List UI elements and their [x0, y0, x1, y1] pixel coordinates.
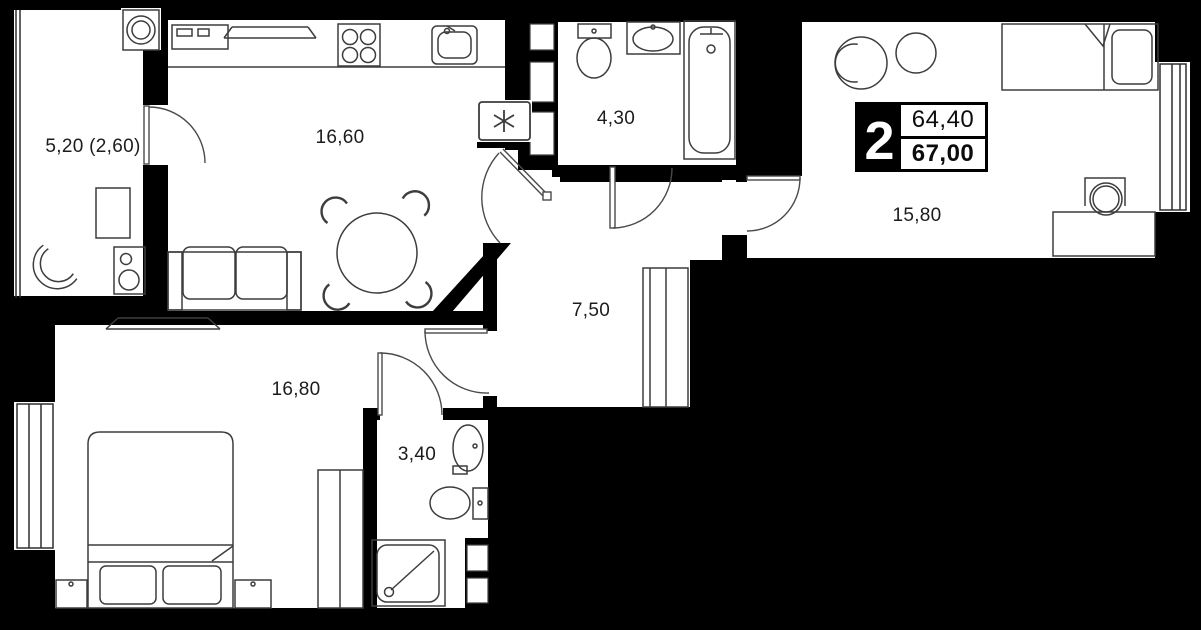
room-label-balcony: 5,20 (2,60) — [45, 136, 140, 158]
room-label-kitchen-living: 16,60 — [315, 127, 364, 149]
room-label-bedroom-right: 15,80 — [892, 205, 941, 227]
room-label-bathroom: 4,30 — [597, 108, 635, 130]
room-label-bathroom-small: 3,40 — [398, 444, 436, 466]
rooms-count: 2 — [858, 105, 901, 169]
room-label-bedroom-left: 16,80 — [271, 379, 320, 401]
room-label-hallway: 7,50 — [572, 300, 610, 322]
apartment-info-badge: 2 64,40 67,00 — [855, 102, 988, 172]
total-area-value: 67,00 — [901, 139, 985, 170]
living-area-value: 64,40 — [901, 105, 985, 139]
floor-plan: 5,20 (2,60) 16,60 4,30 7,50 15,80 16,80 … — [0, 0, 1201, 630]
